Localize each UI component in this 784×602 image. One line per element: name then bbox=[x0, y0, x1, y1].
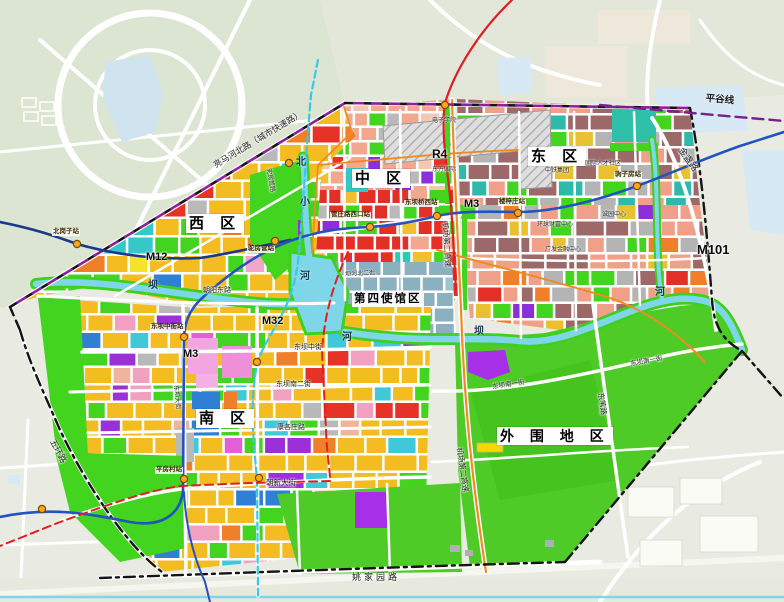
parcel bbox=[407, 351, 423, 366]
parcel bbox=[357, 237, 373, 250]
parcel bbox=[435, 309, 454, 322]
parcel bbox=[257, 543, 279, 558]
parcel bbox=[369, 114, 384, 126]
parcel bbox=[133, 368, 150, 383]
parcel bbox=[395, 403, 419, 418]
parcel bbox=[153, 386, 172, 401]
parcel bbox=[229, 543, 255, 558]
parcel bbox=[357, 403, 374, 418]
parcel bbox=[551, 116, 566, 130]
parcel bbox=[259, 368, 282, 383]
building-green-1 bbox=[450, 545, 460, 552]
parcel bbox=[429, 190, 445, 203]
parcel bbox=[493, 304, 510, 318]
parcel bbox=[591, 116, 613, 130]
parcel bbox=[216, 333, 248, 348]
parcel bbox=[666, 271, 688, 285]
parcel bbox=[367, 438, 386, 453]
parcel bbox=[128, 238, 152, 254]
parcel bbox=[402, 368, 417, 383]
parcel bbox=[530, 222, 548, 236]
se-building-2 bbox=[680, 478, 722, 504]
purple-block-bottom bbox=[355, 492, 388, 528]
parcel bbox=[555, 165, 574, 179]
parcel bbox=[257, 508, 284, 523]
parcel bbox=[585, 182, 601, 196]
parcel bbox=[207, 508, 225, 523]
parcel bbox=[350, 368, 380, 383]
parcel bbox=[104, 438, 126, 453]
parcel bbox=[330, 456, 354, 471]
parcel bbox=[598, 165, 618, 179]
parcel bbox=[287, 438, 310, 453]
parcel bbox=[395, 316, 418, 331]
parcel bbox=[152, 368, 174, 383]
parcel bbox=[229, 275, 248, 291]
parcel bbox=[601, 205, 615, 219]
parcel bbox=[568, 238, 585, 252]
station-dot[interactable] bbox=[271, 237, 278, 244]
parcel bbox=[221, 421, 239, 436]
ne-lake-small bbox=[497, 57, 532, 95]
parcel bbox=[431, 237, 442, 250]
parcel bbox=[265, 438, 285, 453]
parcel bbox=[411, 237, 429, 250]
parcel bbox=[187, 526, 220, 541]
parcel bbox=[255, 456, 286, 471]
parcel bbox=[555, 304, 571, 318]
station-dot[interactable] bbox=[633, 182, 640, 189]
yellow-strip-peripheral bbox=[477, 443, 503, 452]
field-patch-1 bbox=[545, 46, 627, 98]
parcel bbox=[553, 238, 566, 252]
parcel bbox=[181, 219, 197, 235]
parcel bbox=[670, 255, 691, 269]
parcel bbox=[513, 304, 534, 318]
parcel bbox=[411, 190, 427, 203]
parcel bbox=[404, 206, 416, 219]
parcel bbox=[107, 256, 127, 272]
parcel bbox=[229, 456, 252, 471]
parcel bbox=[489, 182, 505, 196]
parcel bbox=[155, 238, 178, 254]
parcel bbox=[213, 316, 233, 331]
parcel bbox=[387, 114, 399, 126]
parcel bbox=[383, 368, 400, 383]
parcel bbox=[478, 222, 507, 236]
parcel bbox=[417, 293, 435, 306]
parcel bbox=[617, 271, 634, 285]
parcel bbox=[388, 438, 415, 453]
parcel bbox=[535, 288, 550, 302]
parcel bbox=[570, 149, 585, 163]
parcel bbox=[155, 438, 179, 453]
station-dot[interactable] bbox=[285, 159, 292, 166]
parcel bbox=[275, 403, 301, 418]
parcel bbox=[305, 368, 324, 383]
parcel bbox=[649, 238, 678, 252]
parcel bbox=[591, 271, 614, 285]
parcel bbox=[421, 172, 433, 184]
parcel bbox=[362, 206, 373, 219]
parcel bbox=[328, 351, 349, 366]
station-dot[interactable] bbox=[433, 212, 440, 219]
parcel bbox=[113, 386, 128, 401]
teal-block-central bbox=[346, 168, 368, 192]
parcel bbox=[315, 237, 334, 250]
parcel bbox=[228, 508, 254, 523]
parcel bbox=[429, 262, 455, 275]
parcel bbox=[385, 456, 417, 471]
parcel bbox=[377, 172, 398, 184]
parcel bbox=[478, 288, 501, 302]
pink-block-1 bbox=[188, 338, 218, 374]
parcel bbox=[552, 288, 575, 302]
parcel bbox=[351, 351, 375, 366]
parcel bbox=[479, 271, 501, 285]
sw-pond bbox=[8, 475, 20, 484]
parcel bbox=[377, 351, 404, 366]
parcel bbox=[324, 403, 354, 418]
parcel bbox=[537, 304, 553, 318]
parcel bbox=[164, 403, 196, 418]
parcel bbox=[365, 316, 392, 331]
parcel bbox=[621, 165, 635, 179]
street-vertical-345 bbox=[344, 108, 345, 300]
parcel bbox=[209, 201, 243, 217]
station-dot[interactable] bbox=[38, 505, 45, 512]
parcel bbox=[383, 262, 402, 275]
parcel bbox=[541, 205, 558, 219]
parcel bbox=[284, 368, 303, 383]
parcel bbox=[393, 386, 413, 401]
parcel bbox=[85, 368, 111, 383]
parcel bbox=[288, 456, 304, 471]
field-patch-2 bbox=[598, 10, 690, 44]
parcel bbox=[380, 278, 397, 291]
parcel bbox=[329, 190, 340, 203]
station-dot[interactable] bbox=[180, 475, 187, 482]
parcel bbox=[638, 205, 654, 219]
parcel bbox=[216, 182, 241, 198]
parcel bbox=[357, 456, 382, 471]
se-building-4 bbox=[640, 540, 682, 566]
parcel bbox=[290, 333, 305, 348]
parcel bbox=[88, 316, 112, 331]
parcel bbox=[218, 491, 233, 506]
parcel bbox=[243, 526, 263, 541]
parcel bbox=[559, 182, 583, 196]
parcel bbox=[469, 165, 489, 179]
parcel bbox=[476, 304, 491, 318]
parcel bbox=[107, 403, 133, 418]
parcel bbox=[138, 316, 154, 331]
parcel bbox=[375, 206, 387, 219]
parcel bbox=[210, 543, 227, 558]
station-dot[interactable] bbox=[514, 209, 521, 216]
parcel bbox=[276, 351, 297, 366]
orange-block-south bbox=[224, 392, 237, 409]
building-green-3 bbox=[545, 540, 554, 547]
parcel bbox=[376, 237, 389, 250]
parcel bbox=[250, 275, 272, 291]
parcel bbox=[131, 333, 149, 348]
parcel bbox=[662, 222, 675, 236]
parcel bbox=[565, 271, 588, 285]
parcel bbox=[576, 205, 598, 219]
parcel bbox=[355, 114, 367, 126]
parcel bbox=[338, 438, 364, 453]
parcel bbox=[114, 368, 131, 383]
parcel bbox=[130, 386, 151, 401]
parcel bbox=[595, 132, 612, 146]
parcel bbox=[307, 456, 328, 471]
parcel bbox=[103, 333, 128, 348]
station-dot[interactable] bbox=[180, 333, 187, 340]
parcel bbox=[157, 316, 183, 331]
parcel bbox=[329, 206, 343, 219]
parcel bbox=[188, 201, 207, 217]
parcel bbox=[576, 165, 596, 179]
parcel bbox=[129, 438, 153, 453]
parcel bbox=[588, 238, 604, 252]
station-dot[interactable] bbox=[366, 223, 373, 230]
parcel bbox=[532, 238, 551, 252]
map-canvas bbox=[0, 0, 784, 602]
parcel bbox=[551, 222, 571, 236]
parcel bbox=[405, 262, 427, 275]
parcel bbox=[327, 368, 348, 383]
parcel bbox=[375, 386, 391, 401]
parcel bbox=[393, 293, 414, 306]
parcel bbox=[419, 221, 432, 234]
parcel bbox=[225, 438, 242, 453]
parcel bbox=[89, 403, 105, 418]
parcel bbox=[368, 157, 380, 169]
parcel bbox=[504, 288, 518, 302]
parcel bbox=[437, 293, 453, 306]
station-dot[interactable] bbox=[255, 474, 262, 481]
parcel bbox=[265, 421, 288, 436]
parcel bbox=[136, 403, 162, 418]
parcel bbox=[376, 403, 393, 418]
building-green-2 bbox=[465, 550, 473, 556]
parcel bbox=[606, 238, 625, 252]
parcel bbox=[345, 206, 359, 219]
parcel bbox=[115, 316, 135, 331]
parcel bbox=[617, 205, 635, 219]
parcel bbox=[359, 262, 381, 275]
station-dot[interactable] bbox=[441, 101, 448, 108]
parcel bbox=[364, 278, 378, 291]
parcel bbox=[200, 219, 218, 235]
station-dot[interactable] bbox=[253, 358, 260, 365]
parcel bbox=[569, 132, 593, 146]
planning-map: 西 区中 区东 区南 区外 围 地 区第四使馆区M12M3M3M32M101R4… bbox=[0, 0, 784, 602]
parcel bbox=[434, 221, 447, 234]
se-building-1 bbox=[628, 487, 674, 517]
parcel bbox=[201, 438, 222, 453]
parcel bbox=[313, 438, 335, 453]
parcel bbox=[606, 222, 628, 236]
blue-block-south bbox=[192, 392, 220, 409]
parcel bbox=[568, 116, 588, 130]
pink-block-3 bbox=[196, 374, 218, 389]
parcel bbox=[192, 421, 219, 436]
parcel bbox=[574, 222, 604, 236]
parcel bbox=[222, 526, 240, 541]
parcel bbox=[364, 293, 391, 306]
parcel bbox=[499, 238, 530, 252]
parcel bbox=[378, 190, 390, 203]
parcel bbox=[313, 127, 340, 143]
parcel bbox=[303, 403, 321, 418]
parcel bbox=[190, 491, 216, 506]
se-building-3 bbox=[700, 516, 758, 552]
parcel bbox=[151, 333, 168, 348]
parcel bbox=[472, 182, 486, 196]
parcel bbox=[491, 165, 509, 179]
parcel bbox=[361, 128, 376, 140]
parcel bbox=[400, 172, 419, 184]
station-dot[interactable] bbox=[73, 240, 80, 247]
parcel bbox=[195, 456, 227, 471]
parcel bbox=[474, 238, 496, 252]
parcel bbox=[423, 278, 443, 291]
parcel bbox=[156, 219, 179, 235]
parcel bbox=[130, 256, 148, 272]
parcel bbox=[351, 143, 367, 155]
